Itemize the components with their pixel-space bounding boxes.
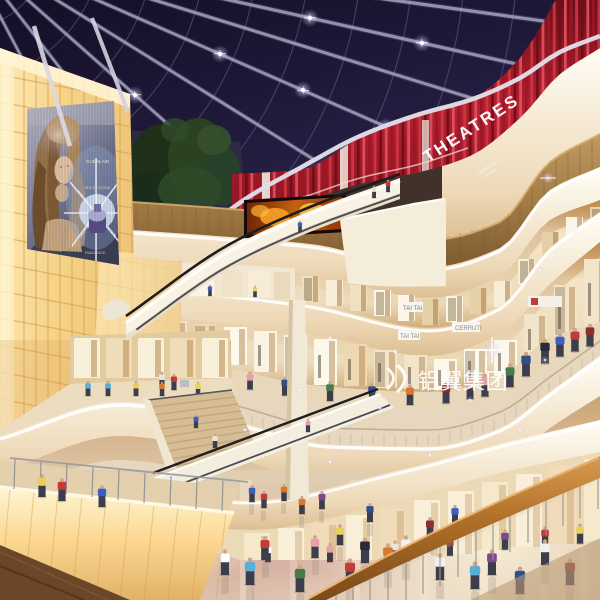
svg-text:铝翼集团: 铝翼集团: [418, 369, 508, 394]
svg-text:TAI TAI: TAI TAI: [403, 306, 423, 312]
svg-text:GUERLAIN: GUERLAIN: [86, 159, 109, 164]
svg-text:TAI TAI: TAI TAI: [400, 334, 420, 340]
svg-text:RADIANCE: RADIANCE: [85, 250, 106, 255]
